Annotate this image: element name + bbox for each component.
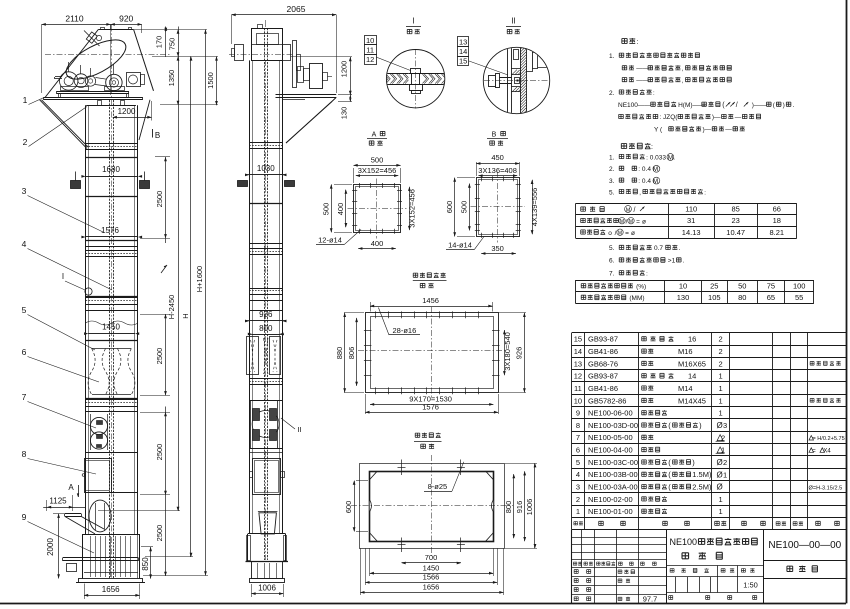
svg-text:2000: 2000 xyxy=(46,538,55,556)
svg-text:105: 105 xyxy=(708,293,721,302)
svg-text:1656: 1656 xyxy=(102,585,120,594)
svg-text:o: o xyxy=(608,230,612,237)
svg-text:14: 14 xyxy=(688,372,696,381)
svg-text:10.47: 10.47 xyxy=(726,228,745,237)
svg-text:M14X45: M14X45 xyxy=(678,396,706,405)
svg-text:500: 500 xyxy=(371,156,384,165)
svg-text:1: 1 xyxy=(723,470,727,479)
svg-text:28-ø16: 28-ø16 xyxy=(393,326,417,335)
svg-text:Ø=H-3.15/2.5: Ø=H-3.15/2.5 xyxy=(809,485,843,491)
svg-text:8-ø25: 8-ø25 xyxy=(428,482,448,491)
svg-text:I: I xyxy=(412,17,414,26)
svg-text:66: 66 xyxy=(773,205,781,214)
svg-text:800: 800 xyxy=(504,501,513,514)
svg-text:5.: 5. xyxy=(609,245,615,252)
svg-text:85: 85 xyxy=(732,205,740,214)
svg-text:4: 4 xyxy=(22,239,27,249)
svg-text:1: 1 xyxy=(719,372,723,381)
svg-text:2.: 2. xyxy=(609,166,615,173)
svg-text:55: 55 xyxy=(795,293,803,302)
svg-text:/: / xyxy=(615,230,617,237)
svg-text:1.: 1. xyxy=(609,154,615,161)
svg-text:II: II xyxy=(511,17,515,26)
svg-text:1200: 1200 xyxy=(118,107,136,116)
svg-text:NE100-03B-00: NE100-03B-00 xyxy=(588,470,638,479)
svg-text:400: 400 xyxy=(371,239,384,248)
svg-text:GB68-76: GB68-76 xyxy=(588,359,618,368)
svg-text:23: 23 xyxy=(732,216,740,225)
svg-text:GB41-86: GB41-86 xyxy=(588,347,618,356)
svg-text:9: 9 xyxy=(576,409,580,418)
svg-text:GB5782-86: GB5782-86 xyxy=(588,396,626,405)
svg-text:1125: 1125 xyxy=(49,497,67,506)
svg-text:1: 1 xyxy=(719,384,723,393)
svg-text:NE100-03A-00: NE100-03A-00 xyxy=(588,483,638,492)
svg-text:12-ø14: 12-ø14 xyxy=(318,236,342,245)
svg-text::: : xyxy=(637,39,639,46)
svg-text:350: 350 xyxy=(491,244,504,253)
svg-text:10: 10 xyxy=(574,396,582,405)
svg-text:2065: 2065 xyxy=(287,4,306,14)
svg-text:=: = xyxy=(812,448,816,454)
svg-text:1: 1 xyxy=(719,396,723,405)
svg-text:1: 1 xyxy=(719,495,723,504)
svg-text:1030: 1030 xyxy=(257,164,275,173)
svg-text:2.5M): 2.5M) xyxy=(692,483,712,492)
svg-text:130: 130 xyxy=(340,107,349,120)
svg-text:2: 2 xyxy=(23,137,28,147)
svg-text:NE100—00—00: NE100—00—00 xyxy=(768,540,841,551)
svg-text:ø: ø xyxy=(642,219,646,226)
svg-text:1450: 1450 xyxy=(102,323,120,332)
svg-text:926: 926 xyxy=(514,347,523,360)
svg-text:3: 3 xyxy=(576,483,580,492)
svg-text:500: 500 xyxy=(460,201,469,214)
svg-text:NE100: NE100 xyxy=(670,537,698,547)
svg-text:=: = xyxy=(636,219,640,226)
svg-text:2500: 2500 xyxy=(155,525,164,542)
svg-text:1576: 1576 xyxy=(422,402,439,411)
svg-text:M: M xyxy=(629,219,633,225)
svg-text:M16: M16 xyxy=(678,347,693,356)
svg-text:1456: 1456 xyxy=(422,296,439,305)
svg-text:M14: M14 xyxy=(678,384,693,393)
svg-text:0.7: 0.7 xyxy=(654,245,663,252)
svg-text:A: A xyxy=(68,483,74,492)
svg-text:450: 450 xyxy=(491,153,504,162)
svg-text:100: 100 xyxy=(793,281,806,290)
svg-text:3: 3 xyxy=(723,421,727,430)
svg-text:—: — xyxy=(725,127,732,134)
svg-text:II: II xyxy=(297,425,301,434)
svg-text:M16X65: M16X65 xyxy=(678,359,706,368)
svg-text:75: 75 xyxy=(767,281,775,290)
svg-text:18: 18 xyxy=(773,216,781,225)
svg-text:15: 15 xyxy=(574,335,582,344)
svg-text:1576: 1576 xyxy=(101,226,119,235)
svg-text:2110: 2110 xyxy=(65,14,84,24)
svg-text:4X139=556: 4X139=556 xyxy=(530,188,539,227)
svg-text:1: 1 xyxy=(719,507,723,516)
svg-text:14.13: 14.13 xyxy=(682,228,701,237)
svg-text:NE100-03D-00: NE100-03D-00 xyxy=(588,421,638,430)
svg-text:—: — xyxy=(735,114,742,121)
svg-text:800: 800 xyxy=(259,324,273,333)
svg-text:14: 14 xyxy=(459,47,467,56)
svg-text:926: 926 xyxy=(259,310,273,319)
svg-text:/: / xyxy=(626,219,628,226)
svg-text:M: M xyxy=(620,219,624,225)
svg-text:B: B xyxy=(155,131,160,140)
svg-text:2500: 2500 xyxy=(155,444,164,461)
svg-text:1656: 1656 xyxy=(423,582,440,591)
svg-text:8: 8 xyxy=(22,449,27,459)
svg-text:H/0.2+5.75: H/0.2+5.75 xyxy=(817,436,845,442)
svg-text:3X180=540: 3X180=540 xyxy=(503,332,512,371)
svg-text:400: 400 xyxy=(336,203,345,216)
svg-text:GB93-87: GB93-87 xyxy=(588,335,618,344)
svg-text:NE100-01-00: NE100-01-00 xyxy=(588,507,633,516)
svg-text:=: = xyxy=(625,230,629,237)
svg-text:I: I xyxy=(62,272,64,281)
svg-text:10: 10 xyxy=(366,36,374,45)
svg-text:M: M xyxy=(626,208,631,214)
svg-text:6.: 6. xyxy=(609,258,615,265)
svg-text:NE100-04-00: NE100-04-00 xyxy=(588,446,633,455)
svg-text:GB41-86: GB41-86 xyxy=(588,384,618,393)
svg-text:/: / xyxy=(736,102,738,109)
svg-text:50: 50 xyxy=(738,281,746,290)
svg-text:5.: 5. xyxy=(609,189,615,196)
svg-text:1200: 1200 xyxy=(340,61,349,78)
svg-text:500: 500 xyxy=(322,203,331,216)
svg-text:31: 31 xyxy=(687,216,695,225)
svg-text:NE100——: NE100—— xyxy=(618,102,651,109)
svg-text:GB93-87: GB93-87 xyxy=(588,372,618,381)
svg-text:B: B xyxy=(492,132,497,139)
svg-text:3X136=408: 3X136=408 xyxy=(478,166,517,175)
svg-text:Ø: Ø xyxy=(716,458,722,467)
svg-text:2500: 2500 xyxy=(155,348,164,365)
svg-text:.: . xyxy=(793,102,795,109)
svg-text:110: 110 xyxy=(685,205,697,214)
svg-text:H: H xyxy=(181,313,190,318)
svg-text:ø: ø xyxy=(631,230,635,237)
svg-text:65: 65 xyxy=(767,293,775,302)
svg-text:)—: )— xyxy=(703,127,712,134)
svg-text:80: 80 xyxy=(738,293,746,302)
svg-text:2: 2 xyxy=(719,335,723,344)
svg-text:: JZQ(: : JZQ( xyxy=(659,114,678,121)
svg-text:M: M xyxy=(618,231,622,237)
svg-text:2500: 2500 xyxy=(155,191,164,208)
svg-text:14: 14 xyxy=(574,347,582,356)
svg-text:15: 15 xyxy=(459,57,467,66)
svg-text:13: 13 xyxy=(459,38,467,47)
svg-text:12: 12 xyxy=(366,55,374,64)
svg-text:NE100-06-00: NE100-06-00 xyxy=(588,409,633,418)
svg-text:25: 25 xyxy=(710,281,718,290)
svg-text:1:50: 1:50 xyxy=(743,580,758,589)
svg-text:4: 4 xyxy=(576,470,580,479)
svg-text:920: 920 xyxy=(119,14,133,24)
svg-text:2: 2 xyxy=(719,347,723,356)
svg-text:600: 600 xyxy=(445,201,454,214)
svg-text:8: 8 xyxy=(576,421,580,430)
svg-text:H-2450: H-2450 xyxy=(167,295,176,320)
svg-text:1680: 1680 xyxy=(102,165,120,174)
svg-text:1500: 1500 xyxy=(206,72,215,89)
svg-text:7: 7 xyxy=(576,433,580,442)
svg-text:1: 1 xyxy=(23,95,28,105)
svg-text:14-ø14: 14-ø14 xyxy=(448,241,472,250)
svg-text:10: 10 xyxy=(679,281,687,290)
svg-text:850: 850 xyxy=(141,557,150,571)
svg-text:H+1600: H+1600 xyxy=(195,266,204,292)
svg-text:2: 2 xyxy=(723,458,727,467)
svg-text:3X152=456: 3X152=456 xyxy=(358,166,397,175)
svg-text:5: 5 xyxy=(576,458,580,467)
svg-text:1.5M): 1.5M) xyxy=(692,470,712,479)
svg-text:1: 1 xyxy=(719,409,723,418)
svg-text:/: / xyxy=(634,207,636,214)
svg-text:A: A xyxy=(372,132,377,139)
svg-text:13: 13 xyxy=(574,359,582,368)
svg-text:1450: 1450 xyxy=(423,563,440,572)
svg-text:X4: X4 xyxy=(823,448,831,454)
svg-text:1.: 1. xyxy=(609,53,615,60)
svg-text:(%): (%) xyxy=(636,284,646,291)
svg-text:8.21: 8.21 xyxy=(769,228,784,237)
svg-text:): ) xyxy=(783,102,785,109)
svg-text:97.7: 97.7 xyxy=(643,594,658,603)
svg-text:NE100-03C-00: NE100-03C-00 xyxy=(588,458,638,467)
svg-text:1006: 1006 xyxy=(258,584,276,593)
svg-text:2: 2 xyxy=(719,359,723,368)
svg-text:6: 6 xyxy=(576,446,580,455)
svg-text:9: 9 xyxy=(22,512,27,522)
svg-text:16: 16 xyxy=(688,335,696,344)
svg-text:2.: 2. xyxy=(609,90,615,97)
svg-text:2: 2 xyxy=(721,433,725,442)
svg-text:12: 12 xyxy=(574,372,582,381)
svg-text:NE100-02-00: NE100-02-00 xyxy=(588,495,633,504)
svg-text:3: 3 xyxy=(22,186,27,196)
svg-text:Ø: Ø xyxy=(716,421,722,430)
svg-text:)—: )— xyxy=(712,114,721,121)
svg-text:NE100-05-00: NE100-05-00 xyxy=(588,433,633,442)
svg-text:Ø: Ø xyxy=(716,483,722,492)
svg-text:Y (: Y ( xyxy=(654,127,663,134)
svg-text:)——: )—— xyxy=(752,102,768,109)
svg-text:11: 11 xyxy=(366,46,374,55)
svg-text:3X152=456: 3X152=456 xyxy=(408,189,417,228)
svg-text:700: 700 xyxy=(425,553,438,562)
svg-text:2: 2 xyxy=(576,495,580,504)
svg-text:3.: 3. xyxy=(609,178,615,185)
svg-text:=: = xyxy=(812,436,816,442)
svg-text:>1: >1 xyxy=(668,258,676,265)
svg-text:806: 806 xyxy=(347,347,356,360)
svg-text:170: 170 xyxy=(155,36,164,49)
svg-text:1350: 1350 xyxy=(167,70,176,87)
svg-text:7: 7 xyxy=(22,392,27,402)
svg-text:600: 600 xyxy=(344,501,353,514)
svg-text:916: 916 xyxy=(515,501,524,514)
svg-text:5: 5 xyxy=(22,305,27,315)
svg-text:130: 130 xyxy=(677,293,690,302)
svg-text:(MM): (MM) xyxy=(629,295,644,302)
svg-text:750: 750 xyxy=(168,38,177,51)
svg-text:6: 6 xyxy=(22,347,27,357)
svg-text:7.: 7. xyxy=(609,271,615,278)
svg-text:11: 11 xyxy=(574,384,582,393)
svg-text:Ø: Ø xyxy=(716,470,722,479)
svg-text:1566: 1566 xyxy=(423,573,440,582)
svg-text:1: 1 xyxy=(576,507,580,516)
svg-text::: : xyxy=(651,144,653,151)
svg-text:880: 880 xyxy=(335,347,344,360)
svg-text:1006: 1006 xyxy=(525,499,534,516)
